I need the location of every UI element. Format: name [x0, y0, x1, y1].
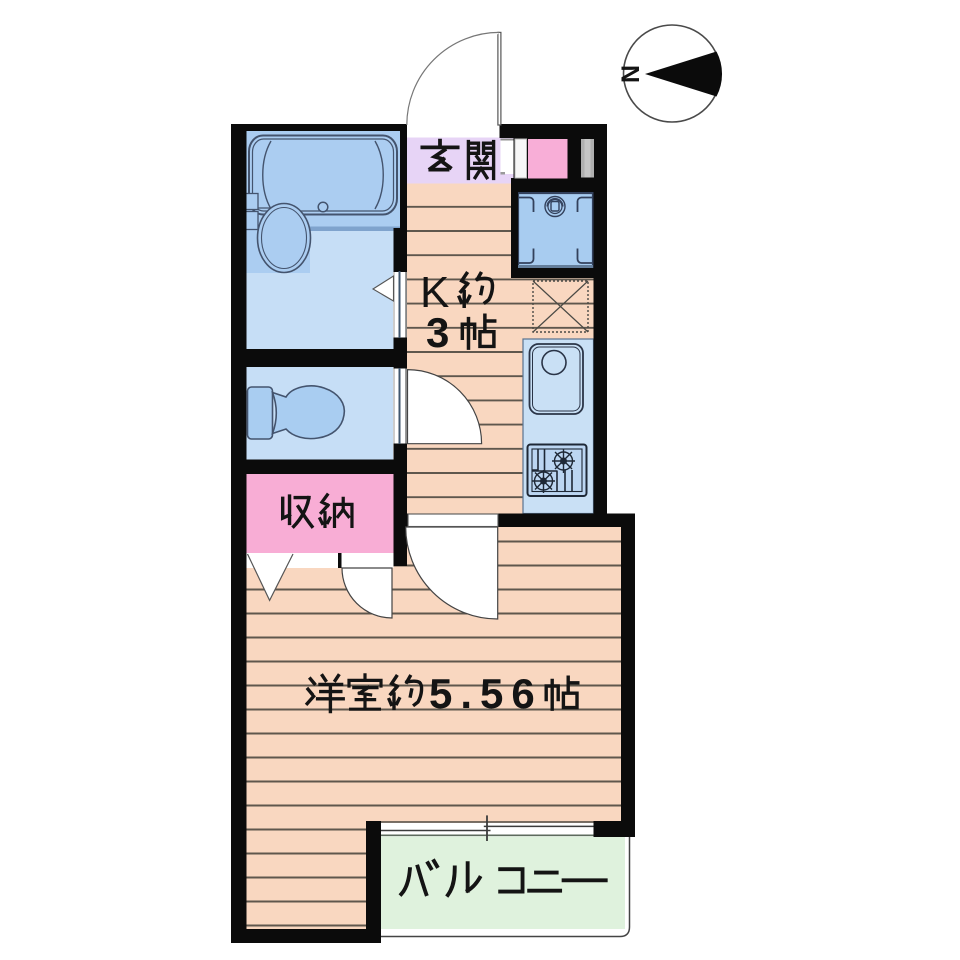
svg-text:5.56: 5.56 — [429, 670, 543, 717]
svg-text:N: N — [617, 65, 645, 83]
svg-text:3: 3 — [426, 309, 449, 356]
